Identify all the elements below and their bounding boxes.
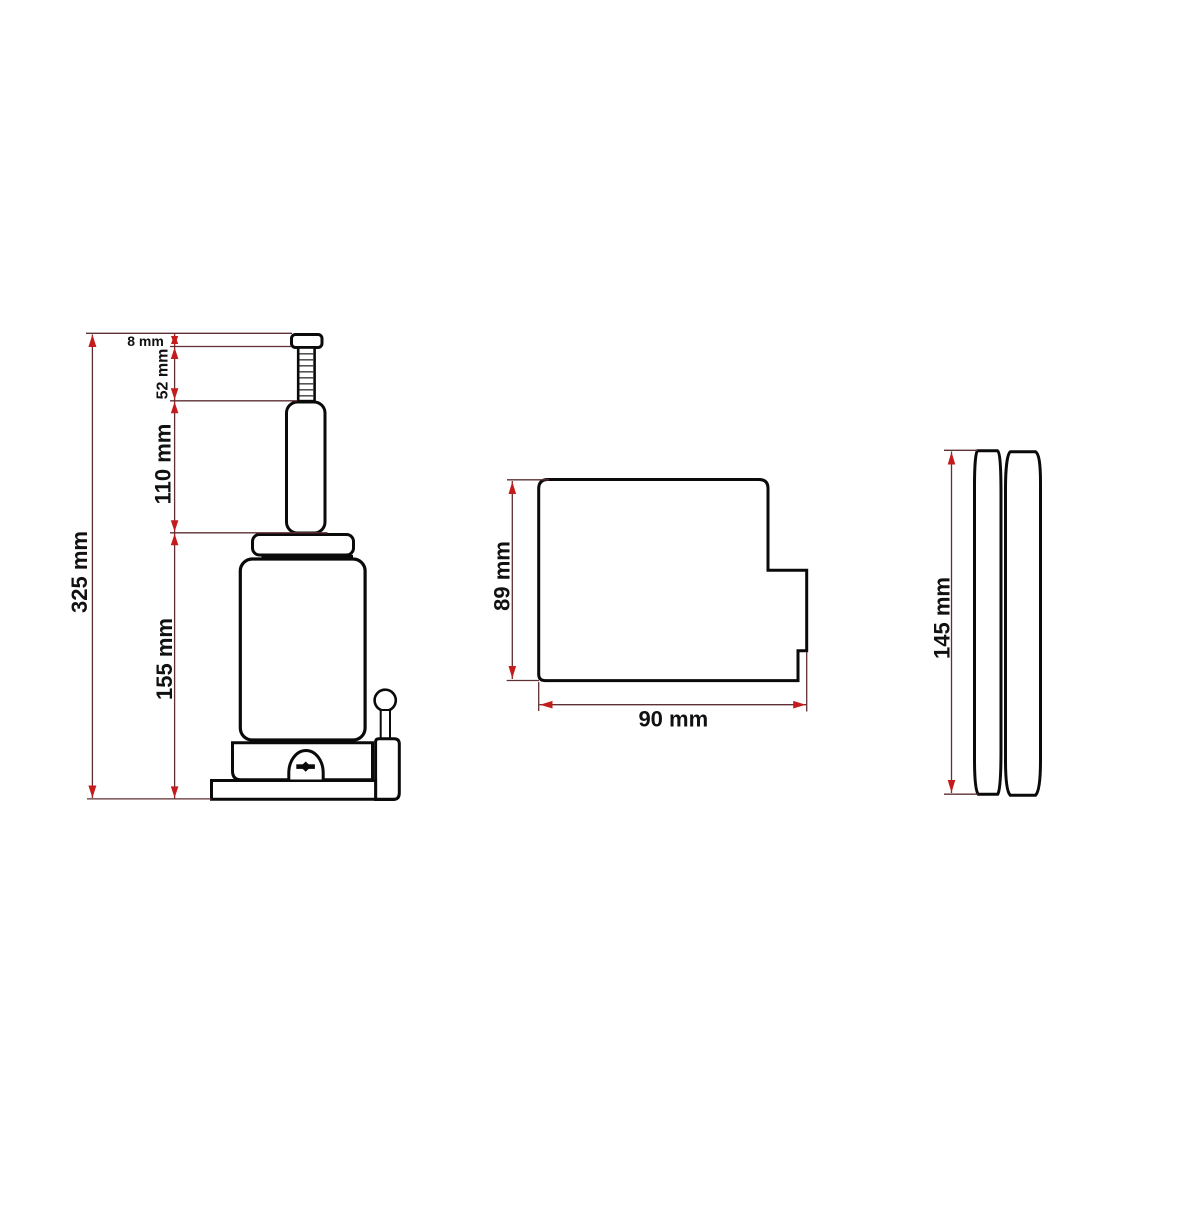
svg-text:155 mm: 155 mm	[152, 618, 177, 700]
svg-text:145 mm: 145 mm	[930, 577, 955, 659]
svg-text:110 mm: 110 mm	[151, 424, 176, 505]
svg-text:52 mm: 52 mm	[155, 349, 172, 400]
svg-text:8 mm: 8 mm	[127, 333, 164, 349]
svg-text:89 mm: 89 mm	[490, 541, 515, 611]
svg-text:325 mm: 325 mm	[67, 531, 92, 613]
svg-text:90 mm: 90 mm	[638, 707, 708, 732]
